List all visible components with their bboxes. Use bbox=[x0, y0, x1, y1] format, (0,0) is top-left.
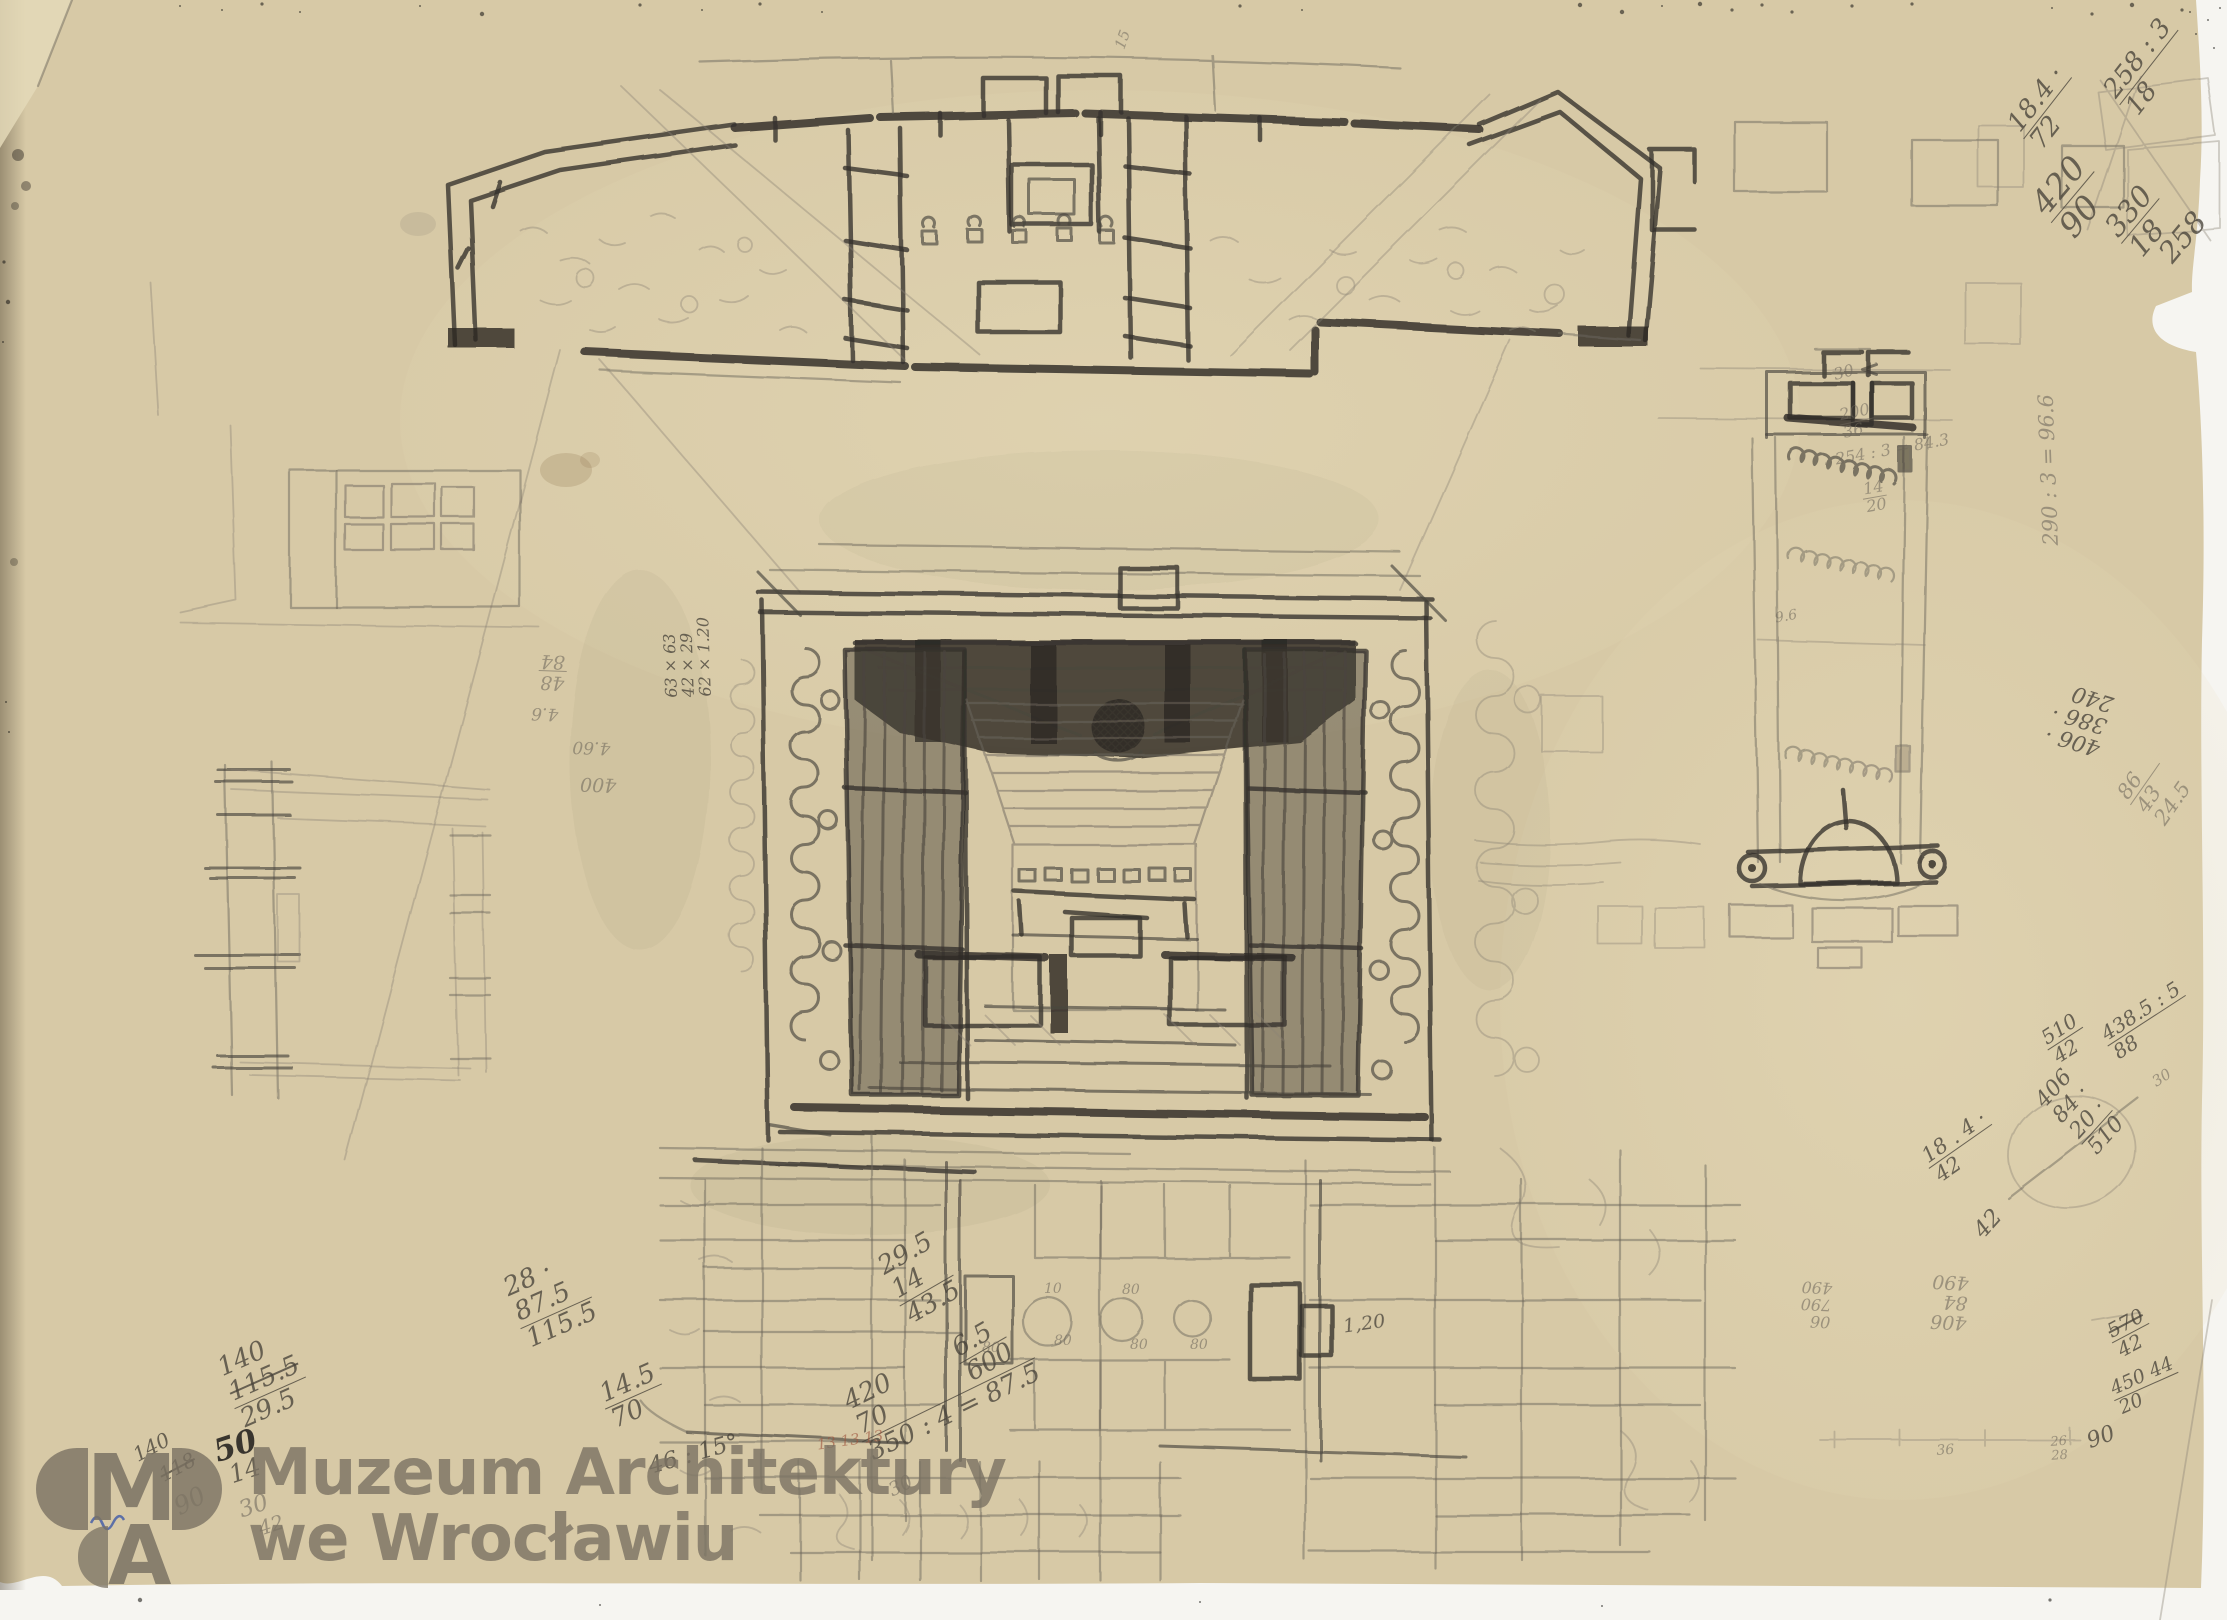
pencil-annotation: 400 bbox=[578, 773, 619, 794]
pencil-annotation: 80 bbox=[1188, 1338, 1210, 1353]
pencil-annotation: 2628 bbox=[2048, 1435, 2070, 1464]
logo-right-cap bbox=[172, 1448, 222, 1530]
watermark-line2: we Wrocławiu bbox=[248, 1506, 1006, 1572]
museum-logo: M A bbox=[36, 1440, 236, 1590]
pencil-annotation: 4.60 bbox=[570, 737, 612, 756]
pencil-annotation: 63 × 6342 × 2962 × 1.20 bbox=[661, 615, 714, 700]
pencil-annotation: 290 : 3 = 96.6 bbox=[2035, 392, 2062, 548]
pencil-annotation: 36 bbox=[1934, 1442, 1957, 1458]
scanned-sketch-sheet: 18.4 ·72258 : 31842090330182583020036254… bbox=[0, 0, 2227, 1620]
logo-letter-a: A bbox=[108, 1525, 171, 1589]
sketch-artwork bbox=[0, 0, 2227, 1620]
logo-left-cap bbox=[36, 1448, 88, 1530]
pencil-annotation: 80 bbox=[1128, 1338, 1150, 1353]
pencil-annotation: 20036 bbox=[1836, 401, 1877, 442]
watermark-line1: Muzeum Architektury bbox=[248, 1440, 1006, 1506]
pencil-annotation: 80 bbox=[980, 1341, 1002, 1356]
pencil-annotation: 4.6 bbox=[529, 703, 561, 722]
pencil-annotation: 80 bbox=[1052, 1334, 1074, 1349]
pencil-annotation: 40684490 bbox=[1928, 1270, 1971, 1332]
pencil-annotation: 80 bbox=[1120, 1283, 1142, 1298]
pencil-annotation: 10 bbox=[1042, 1282, 1064, 1297]
museum-watermark: M A Muzeum Architektury we Wrocławiu bbox=[36, 1440, 1006, 1590]
logo-bottom-cap bbox=[78, 1526, 108, 1588]
pencil-annotation: 06790490 bbox=[1798, 1278, 1835, 1330]
pencil-annotation: 4884 bbox=[538, 650, 568, 692]
